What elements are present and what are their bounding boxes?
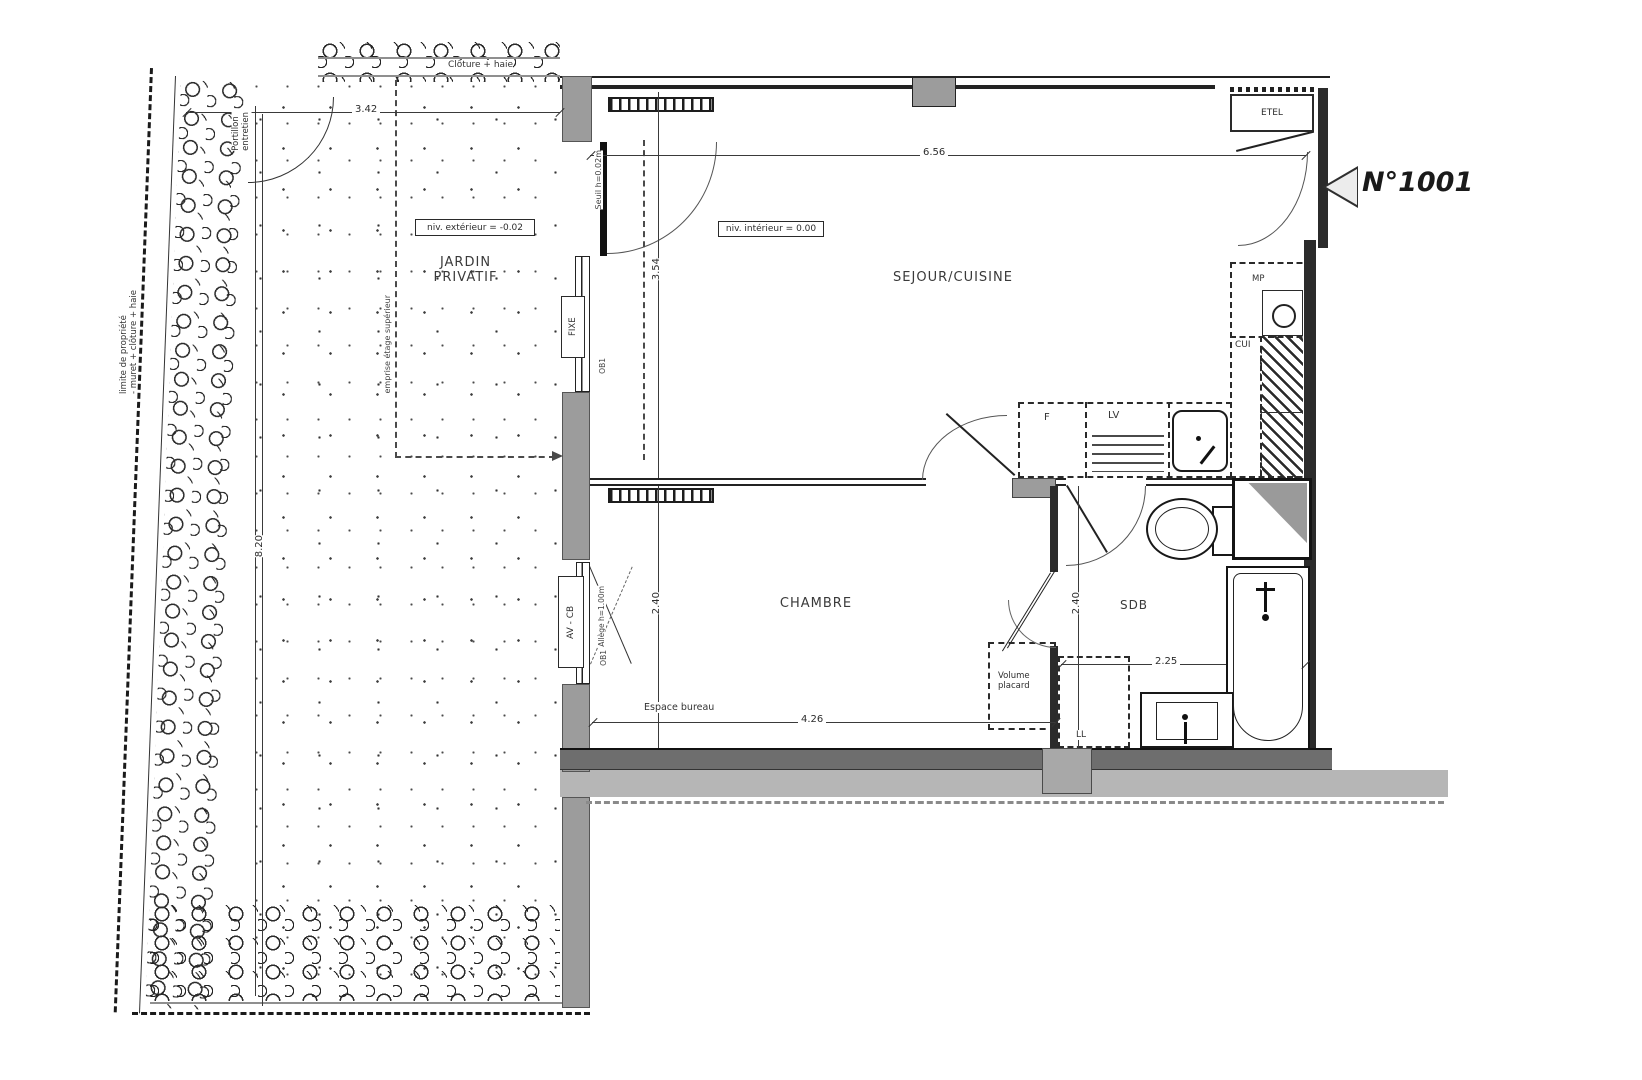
radiator-chambre [608, 488, 714, 503]
dim-2-40-chambre: 2.40 [648, 592, 665, 614]
unit-marker-triangle [1326, 169, 1357, 205]
dim-3-54: 3.54 [648, 258, 665, 280]
fence-line-top-2 [318, 75, 560, 77]
upper-floor-note: emprise étage supérieur [383, 295, 392, 393]
upper-floor-line-h [395, 456, 555, 458]
upper-floor-arrow [552, 451, 563, 461]
counter-divider-2 [1168, 402, 1170, 478]
dim-2-40-sdb: 2.40 [1068, 592, 1085, 614]
shower-tray-slope [1237, 483, 1307, 555]
bathtub-faucet [1264, 582, 1267, 612]
window-fixe-label: FIXE [561, 296, 585, 358]
pillar-top [912, 77, 956, 107]
radiator-sejour [608, 97, 714, 112]
chambre-door-swing-arc [922, 415, 1007, 480]
entry-vent-dashes [1230, 87, 1314, 92]
window-av-cb-type: OB1 [599, 650, 608, 666]
cui-label: CUI [1235, 340, 1251, 350]
dim-line-2-40-sdb [1078, 486, 1079, 748]
property-line-left [114, 68, 153, 1012]
threshold-dashed-line [643, 140, 645, 460]
bathtub-faucet-bar [1256, 588, 1275, 591]
band-south-light [560, 770, 1448, 797]
unit-number-label: N°1001 [1362, 167, 1473, 198]
wall-top [560, 76, 1215, 89]
dim-2-25: 2.25 [1152, 656, 1180, 667]
water-heater-circle [1272, 304, 1296, 328]
dim-6-56: 6.56 [920, 147, 948, 158]
dishwasher-lines [1092, 428, 1164, 472]
gate-label: Portillon entretien [232, 112, 252, 151]
bathtub-inner [1233, 573, 1303, 741]
fridge-label: F [1044, 412, 1050, 423]
room-label-sejour: SEJOUR/CUISINE [868, 270, 1038, 285]
wall-chambre-north [590, 478, 926, 486]
dim-8-20: 8.20 [251, 535, 268, 557]
pillar-bottom [1042, 748, 1092, 794]
etel-closet: ETEL [1230, 94, 1314, 132]
kitchen-sink-drain [1196, 436, 1201, 441]
floor-plan: limite de propriété - muret + clôture + … [0, 0, 1642, 1080]
closet-volume-label: Volume placard [998, 672, 1030, 692]
shaft-divider [1260, 412, 1303, 413]
dishwasher-label: LV [1108, 410, 1119, 421]
washing-machine-label: LL [1076, 730, 1086, 740]
desk-area-label: Espace bureau [644, 702, 714, 713]
dim-3-42: 3.42 [352, 104, 380, 115]
threshold-note: Seuil h=0.02m [594, 150, 603, 209]
wall-sdb-north-a [1056, 478, 1066, 486]
garden-wall-south [562, 797, 590, 1008]
room-label-jardin: JARDIN PRIVATIF [408, 256, 523, 286]
upper-floor-line-v [395, 80, 397, 458]
south-dashed-line [586, 801, 1444, 804]
dim-line-8-20 [262, 114, 263, 1006]
washbasin-faucet [1184, 722, 1187, 744]
room-label-chambre: CHAMBRE [756, 596, 876, 611]
exterior-level-box: niv. extérieur = -0.02 [415, 219, 535, 236]
window-av-cb-label: AV - CB [558, 576, 584, 668]
room-label-sdb: SDB [1104, 598, 1164, 612]
window-fixe-type: OB1 [598, 358, 607, 374]
washbasin-drain [1182, 714, 1188, 720]
cloture-haie-label: Clôture + haie [448, 60, 513, 70]
entry-door-swing-arc [1238, 152, 1308, 246]
counter-divider-1 [1085, 402, 1087, 478]
wall-chambre-east-a [1050, 486, 1058, 572]
mp-label: MP [1252, 274, 1264, 284]
washbasin-inner [1156, 702, 1218, 740]
garden-wall-line-bottom [150, 1002, 562, 1004]
wall-west-a [562, 392, 590, 560]
corner-block-topleft [562, 76, 592, 142]
dim-line-3-54 [658, 92, 659, 478]
entry-door-leaf [1236, 131, 1314, 152]
hedge-strip-bottom [150, 905, 560, 1001]
fence-line-top-1 [318, 57, 560, 59]
wall-south [560, 748, 1332, 770]
washing-machine [1058, 656, 1130, 748]
sill-height-note: Allège h=1.00m [597, 586, 606, 647]
garden-door-swing-arc [607, 142, 717, 254]
interior-level-box: niv. intérieur = 0.00 [718, 221, 824, 237]
bathtub-drain [1262, 614, 1269, 621]
hedge-strip-left [145, 80, 253, 1010]
toilet-bowl-inner [1155, 507, 1209, 551]
dim-4-26: 4.26 [798, 714, 826, 725]
technical-shaft-hatch [1260, 336, 1303, 478]
property-line-bottom [132, 1012, 590, 1015]
property-limit-note: limite de propriété - muret + clôture + … [120, 290, 140, 394]
